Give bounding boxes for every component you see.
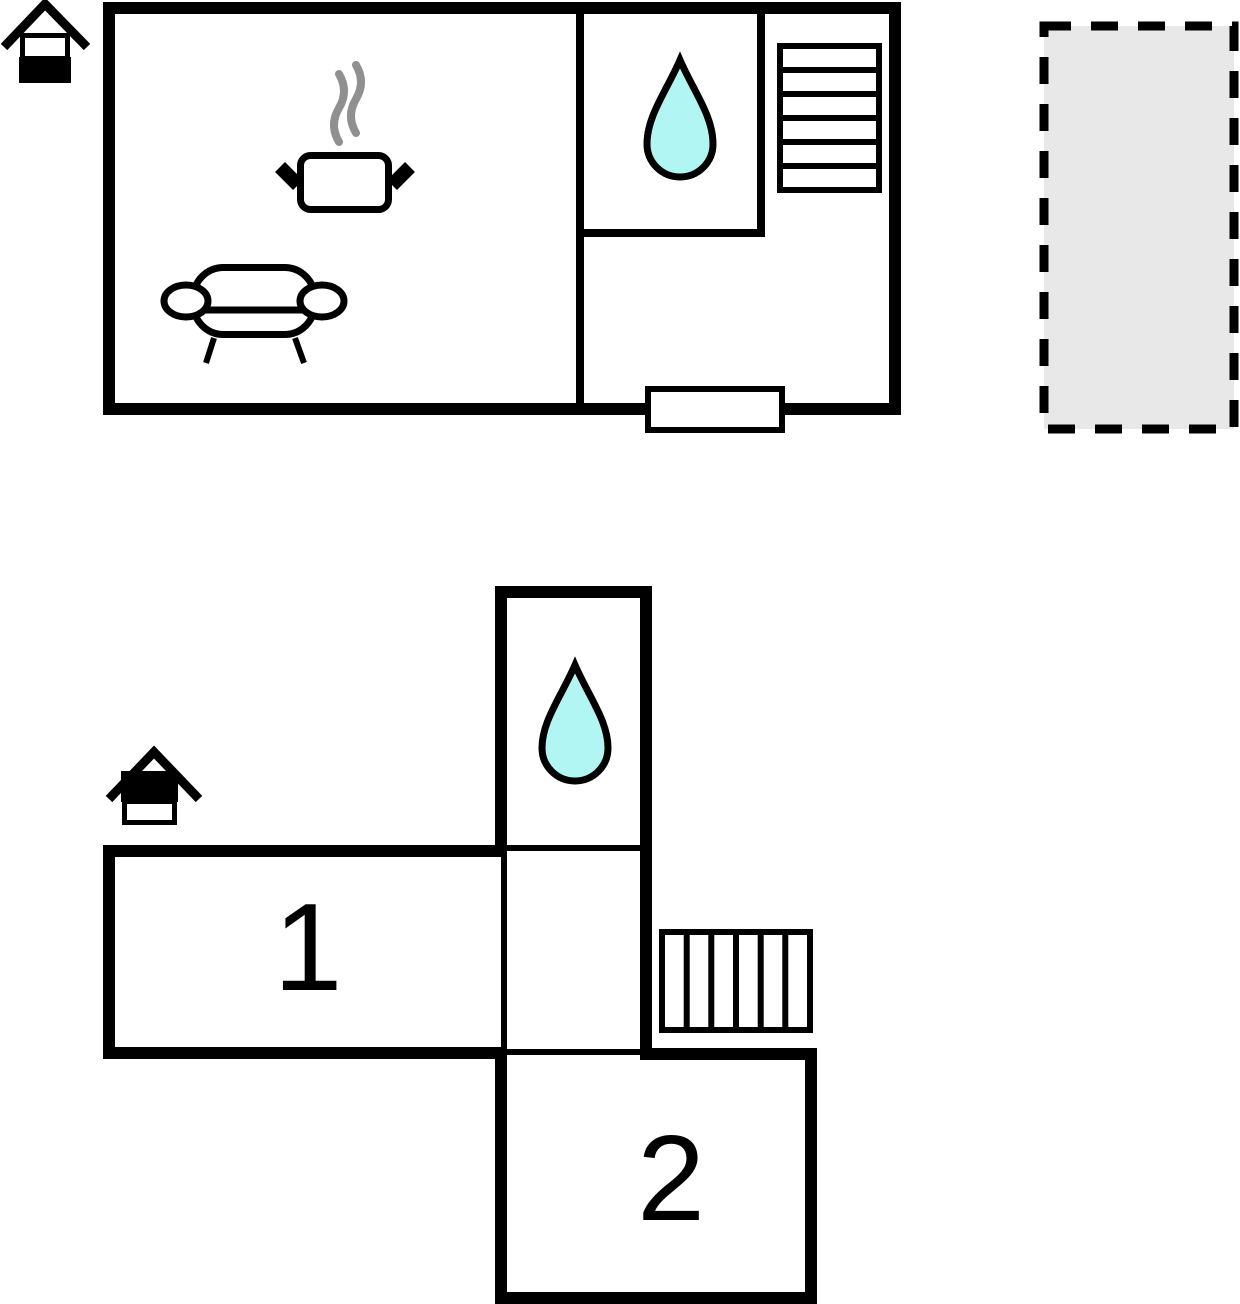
house-upper-half	[23, 36, 68, 59]
wall-room2-top	[640, 1048, 817, 1060]
stairs-vertical-icon	[662, 932, 810, 1030]
wall-room1-bottom	[103, 1047, 507, 1059]
page: { "colors": { "wall": "#000000", "water"…	[0, 0, 1240, 1304]
wall-room2-right	[805, 1048, 817, 1304]
pot-body	[301, 156, 389, 210]
sofa-armrest-left	[164, 285, 208, 317]
water-drop-icon	[542, 665, 608, 781]
wall-bath-tower-right	[640, 586, 652, 1060]
wall-room1-left	[103, 845, 115, 1059]
upper-floor-plan: 1 2	[103, 586, 817, 1304]
house-lower-half	[125, 802, 175, 823]
wall-bath-tower-left	[495, 586, 507, 851]
sofa-armrest-right	[300, 285, 344, 317]
house-lower-half-filled	[19, 57, 71, 83]
room-2-label: 2	[637, 1110, 705, 1246]
entrance-door	[648, 389, 782, 430]
room-1-label: 1	[274, 879, 343, 1017]
wall-room2-bottom	[495, 1292, 817, 1304]
wall-corridor-left	[501, 851, 507, 1055]
wall-room1-top	[103, 845, 503, 857]
stairs-horizontal-icon	[780, 46, 879, 190]
wall-bath-corridor-divider	[501, 845, 640, 851]
house-upper-half-filled	[121, 771, 178, 802]
floor-plan-image: 1 2	[0, 0, 1240, 1304]
wall-room2-left	[495, 1048, 507, 1304]
house-level-upper-icon	[109, 752, 199, 823]
sofa-body	[194, 268, 315, 335]
wall-bath-tower-top	[495, 586, 652, 598]
house-level-ground-icon	[4, 4, 87, 83]
terrace-dashed-area	[1044, 26, 1234, 429]
wall-corridor-bottom	[507, 1049, 640, 1055]
ground-floor-plan	[4, 4, 895, 430]
floor-plan-svg: 1 2	[0, 0, 1240, 1304]
